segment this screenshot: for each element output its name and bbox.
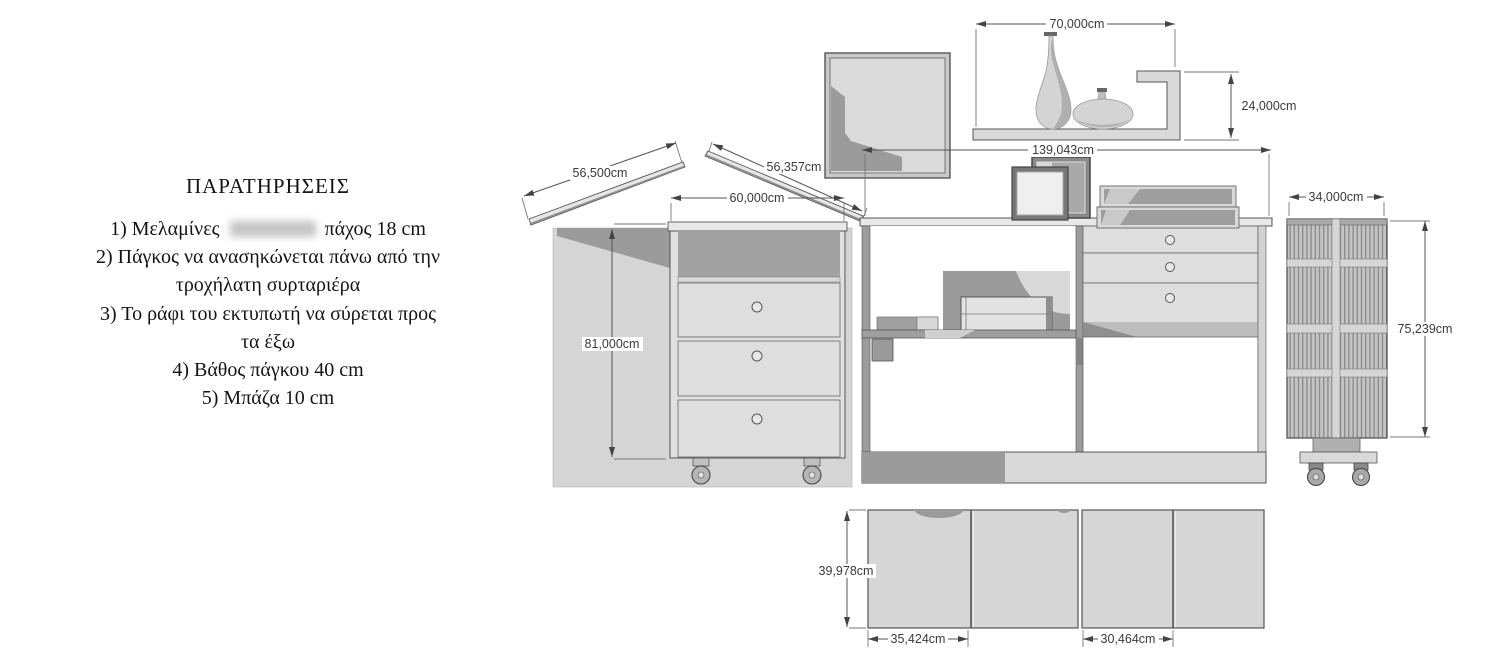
dim-plank-left: 56,500cm [522,141,682,219]
desk-drawer-1 [1083,226,1258,253]
drawer-knob [752,351,762,361]
dim-rack-height: 75,239cm [1390,221,1455,437]
caster-wheel [1353,463,1370,486]
note-1: 1) Μελαμίνεςπάχος 18 cm [2,215,534,243]
wall-shelf [973,32,1180,140]
drawer-3 [678,400,840,457]
drawer-knob [1166,263,1175,272]
door-panels-left-pair [868,500,1078,628]
note-5: 5) Μπάζα 10 cm [2,384,534,412]
note-3: 3) Το ράφι του εκτυπωτή να σύρεται προς [2,300,534,328]
dim-label: 35,424cm [891,632,946,646]
door-panels-right-pair [1082,510,1264,628]
dim-label: 60,000cm [730,191,785,205]
drawer-1 [678,283,840,337]
dim-wall-shelf-height: 24,000cm [1184,72,1296,140]
paper-tray-top [1100,186,1236,207]
outlet-box [872,339,893,361]
dim-label: 39,978cm [819,564,874,578]
caster-wheel [692,458,710,484]
slatted-rack [1287,219,1387,486]
photo-frame-front [1012,167,1068,220]
desk [860,218,1272,483]
note-4: 4) Βάθος πάγκου 40 cm [2,356,534,384]
caster-wheel [1308,463,1325,486]
desk-plinth [862,452,1266,483]
dim-panel-a-width: 35,424cm [868,630,968,647]
note-2b: τροχήλατη συρταριέρα [2,271,534,299]
drawer-2 [678,341,840,396]
desk-drawer-3 [1083,283,1258,337]
dim-label: 139,043cm [1032,143,1094,157]
dim-rack-width: 34,000cm [1289,190,1384,216]
dim-drawer-unit-width: 60,000cm [671,191,844,221]
dim-label: 24,000cm [1242,99,1297,113]
open-compartment [678,231,840,277]
desk-door-panel [1083,337,1258,452]
drawing-canvas: ΠΑΡΑΤΗΡΗΣΕΙΣ 1) Μελαμίνεςπάχος 18 cm 2) … [0,0,1499,662]
desk-drawer-2 [1083,253,1258,283]
wall-pinboard [825,53,950,178]
drawer-knob [1166,294,1175,303]
dim-panel-b-width: 30,464cm [1083,630,1173,647]
round-vase [1073,88,1133,129]
printer-shelf [862,330,1076,338]
notes-block: ΠΑΡΑΤΗΡΗΣΕΙΣ 1) Μελαμίνεςπάχος 18 cm 2) … [2,174,534,412]
dim-panel-height: 39,978cm [816,510,876,628]
notes-title: ΠΑΡΑΤΗΡΗΣΕΙΣ [2,174,534,199]
printer [961,297,1052,331]
dim-label: 70,000cm [1050,17,1105,31]
drawer-knob [752,414,762,424]
rack-pedestal [1313,438,1360,452]
drawer-knob [752,302,762,312]
dim-label: 34,000cm [1309,190,1364,204]
dim-label: 30,464cm [1101,632,1156,646]
tall-vase [1036,32,1071,129]
redacted-brand [230,221,316,237]
dim-label: 75,239cm [1398,322,1453,336]
caster-wheel [803,458,821,484]
note-3b: τα έξω [2,328,534,356]
dim-label: 81,000cm [585,337,640,351]
paper-trays [1097,186,1239,228]
paper-tray-bottom [1097,207,1239,228]
rolling-drawer-unit [668,222,847,484]
drawer-knob [1166,236,1175,245]
note-2: 2) Πάγκος να ανασηκώνεται πάνω από την [2,243,534,271]
dim-label: 56,357cm [767,160,822,174]
dim-label: 56,500cm [573,166,628,180]
rack-base [1300,452,1377,463]
